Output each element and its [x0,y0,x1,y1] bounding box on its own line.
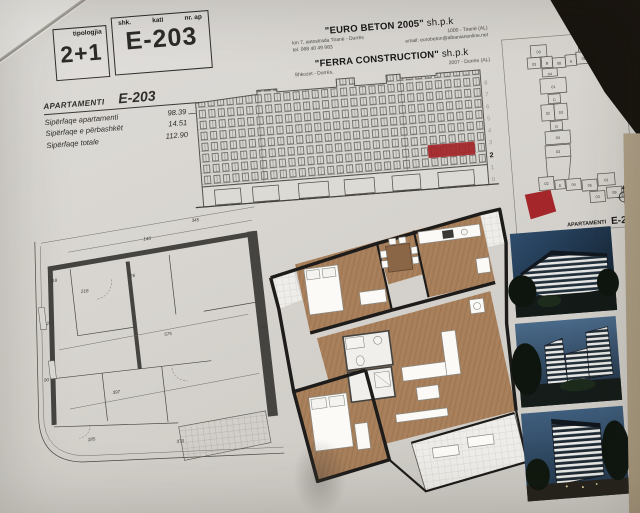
svg-text:345: 345 [191,217,200,223]
svg-text:291: 291 [45,320,55,326]
svg-text:01: 01 [551,85,556,89]
svg-text:08: 08 [557,61,562,65]
unit-code-value: E-203 [112,20,210,57]
drawing-sheet: tipologjia 2+1 shk. kati nr. ap E-203 "E… [0,0,640,513]
svg-text:02: 02 [544,182,549,186]
render-photo-3 [521,406,630,502]
title-block: tipologjia 2+1 shk. kati nr. ap E-203 [52,10,213,81]
svg-text:226: 226 [126,273,136,279]
cad-floor-plan: 345 140 [10,208,288,493]
svg-text:03: 03 [536,50,541,54]
stove [442,230,454,239]
svg-text:04: 04 [556,136,561,140]
svg-text:348: 348 [260,324,269,330]
svg-text:A: A [570,60,573,64]
shadow-smudge [293,438,347,513]
svg-text:01: 01 [604,178,609,182]
svg-text:0: 0 [492,177,496,183]
render-photo-1 [510,226,617,318]
svg-text:03: 03 [532,62,537,66]
svg-text:3: 3 [489,140,493,146]
unit-code-box: shk. kati nr. ap E-203 [111,10,213,76]
svg-text:140: 140 [143,236,152,242]
svg-text:04: 04 [571,183,576,187]
typology-value: 2+1 [54,35,108,71]
bathtub [345,336,364,349]
fridge [476,257,491,274]
svg-text:397: 397 [112,389,121,395]
svg-text:1: 1 [491,165,495,171]
highlighted-floor-number: 2 [489,152,494,159]
washer [469,298,485,314]
apartment-code: E-203 [118,87,156,106]
svg-text:8: 8 [484,80,488,86]
svg-text:185: 185 [87,436,96,442]
svg-text:02: 02 [546,112,551,116]
svg-text:E: E [559,184,562,188]
svg-text:B: B [546,61,549,65]
elevation-drawing: 8 7 6 5 4 3 2 1 0 [185,52,499,217]
svg-text:04: 04 [548,72,553,76]
photo-canvas: tipologjia 2+1 shk. kati nr. ap E-203 "E… [0,0,640,513]
svg-text:D: D [555,125,558,129]
svg-text:4: 4 [488,128,492,134]
apartment-section-label: APARTAMENTI [43,97,105,111]
balcony-tiles [178,411,272,461]
render-photo-2 [515,316,622,408]
svg-text:118: 118 [49,278,57,284]
coffee-table [416,385,440,401]
svg-text:03: 03 [595,195,600,199]
keyplan-highlight-unit [525,189,557,219]
svg-text:03: 03 [559,110,564,114]
svg-text:6: 6 [486,104,490,110]
svg-text:370: 370 [176,438,185,444]
dining-table [386,243,413,272]
svg-text:90: 90 [44,377,50,383]
svg-text:7: 7 [485,92,489,98]
bathroom1 [343,331,393,371]
svg-text:5: 5 [487,116,491,122]
svg-text:03: 03 [556,150,561,154]
svg-text:09: 09 [612,191,617,195]
svg-text:575: 575 [164,331,173,337]
typology-box: tipologjia 2+1 [52,25,110,81]
svg-text:218: 218 [80,288,90,294]
svg-text:C: C [553,98,556,102]
svg-text:05: 05 [588,183,593,187]
